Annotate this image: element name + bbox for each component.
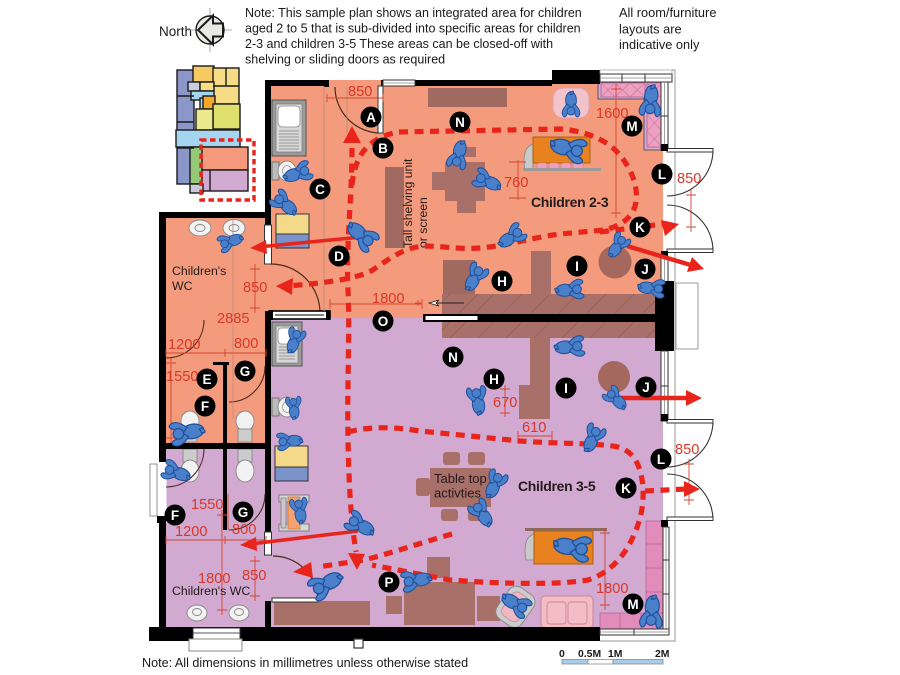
svg-text:H: H xyxy=(489,372,499,387)
svg-text:Table top: Table top xyxy=(434,471,487,486)
svg-text:Children's: Children's xyxy=(172,264,226,278)
svg-text:1800: 1800 xyxy=(372,291,404,307)
svg-text:1M: 1M xyxy=(608,649,622,660)
svg-text:H: H xyxy=(497,274,507,289)
svg-text:Children's WC: Children's WC xyxy=(172,584,250,598)
svg-text:800: 800 xyxy=(232,522,256,538)
svg-text:I: I xyxy=(575,259,579,274)
svg-text:M: M xyxy=(626,119,637,134)
svg-text:850: 850 xyxy=(348,84,372,100)
svg-text:850: 850 xyxy=(243,280,267,296)
svg-text:L: L xyxy=(658,167,666,182)
svg-text:N: N xyxy=(455,115,465,130)
svg-text:1200: 1200 xyxy=(175,524,207,540)
svg-text:A: A xyxy=(366,110,376,125)
svg-text:F: F xyxy=(201,399,209,414)
svg-text:P: P xyxy=(384,575,393,590)
svg-text:850: 850 xyxy=(677,171,701,187)
svg-text:J: J xyxy=(642,380,650,395)
svg-text:I: I xyxy=(564,381,568,396)
svg-text:1550: 1550 xyxy=(191,497,223,513)
svg-text:E: E xyxy=(202,372,211,387)
svg-text:F: F xyxy=(171,508,179,523)
svg-text:G: G xyxy=(238,505,249,520)
svg-text:C: C xyxy=(315,182,325,197)
svg-text:1600: 1600 xyxy=(596,106,628,122)
svg-text:670: 670 xyxy=(493,395,517,411)
svg-text:L: L xyxy=(657,452,665,467)
svg-text:shelving or sliding doors as r: shelving or sliding doors as required xyxy=(245,53,445,67)
svg-text:0.5M: 0.5M xyxy=(578,649,601,660)
svg-text:760: 760 xyxy=(504,175,528,191)
svg-text:800: 800 xyxy=(234,336,258,352)
svg-text:2885: 2885 xyxy=(217,311,249,327)
svg-text:1200: 1200 xyxy=(168,337,200,353)
svg-text:K: K xyxy=(621,481,631,496)
svg-text:Children 2-3: Children 2-3 xyxy=(531,194,609,210)
svg-text:1550: 1550 xyxy=(166,369,198,385)
svg-text:aged 2 to 5 that is sub-divide: aged 2 to 5 that is sub-divided into spe… xyxy=(245,22,581,36)
svg-text:North: North xyxy=(159,24,192,39)
svg-text:0: 0 xyxy=(559,649,565,660)
svg-text:Children 3-5: Children 3-5 xyxy=(518,478,596,494)
svg-text:1800: 1800 xyxy=(596,581,628,597)
svg-text:Note: All dimensions in millim: Note: All dimensions in millimetres unle… xyxy=(142,656,468,670)
svg-text:indicative only: indicative only xyxy=(619,37,700,52)
svg-text:D: D xyxy=(334,249,344,264)
svg-text:2-3 and children 3-5 These are: 2-3 and children 3-5 These areas can be … xyxy=(245,37,553,51)
svg-text:B: B xyxy=(378,141,388,156)
svg-text:O: O xyxy=(378,314,389,329)
svg-text:or screen: or screen xyxy=(416,197,430,248)
svg-text:M: M xyxy=(627,597,638,612)
svg-text:layouts are: layouts are xyxy=(619,22,682,37)
svg-text:J: J xyxy=(641,262,649,277)
svg-text:850: 850 xyxy=(675,442,699,458)
svg-text:Note: This sample plan shows: Note: This sample plan shows an integrat… xyxy=(245,6,582,20)
svg-text:850: 850 xyxy=(242,568,266,584)
svg-text:Tall shelving unit: Tall shelving unit xyxy=(401,158,415,248)
svg-text:activties: activties xyxy=(434,486,481,501)
svg-text:610: 610 xyxy=(522,420,546,436)
svg-text:K: K xyxy=(635,220,645,235)
svg-text:N: N xyxy=(448,350,458,365)
svg-text:2M: 2M xyxy=(655,649,669,660)
svg-text:G: G xyxy=(240,364,251,379)
svg-text:All room/furniture: All room/furniture xyxy=(619,5,716,20)
svg-text:WC: WC xyxy=(172,279,193,293)
